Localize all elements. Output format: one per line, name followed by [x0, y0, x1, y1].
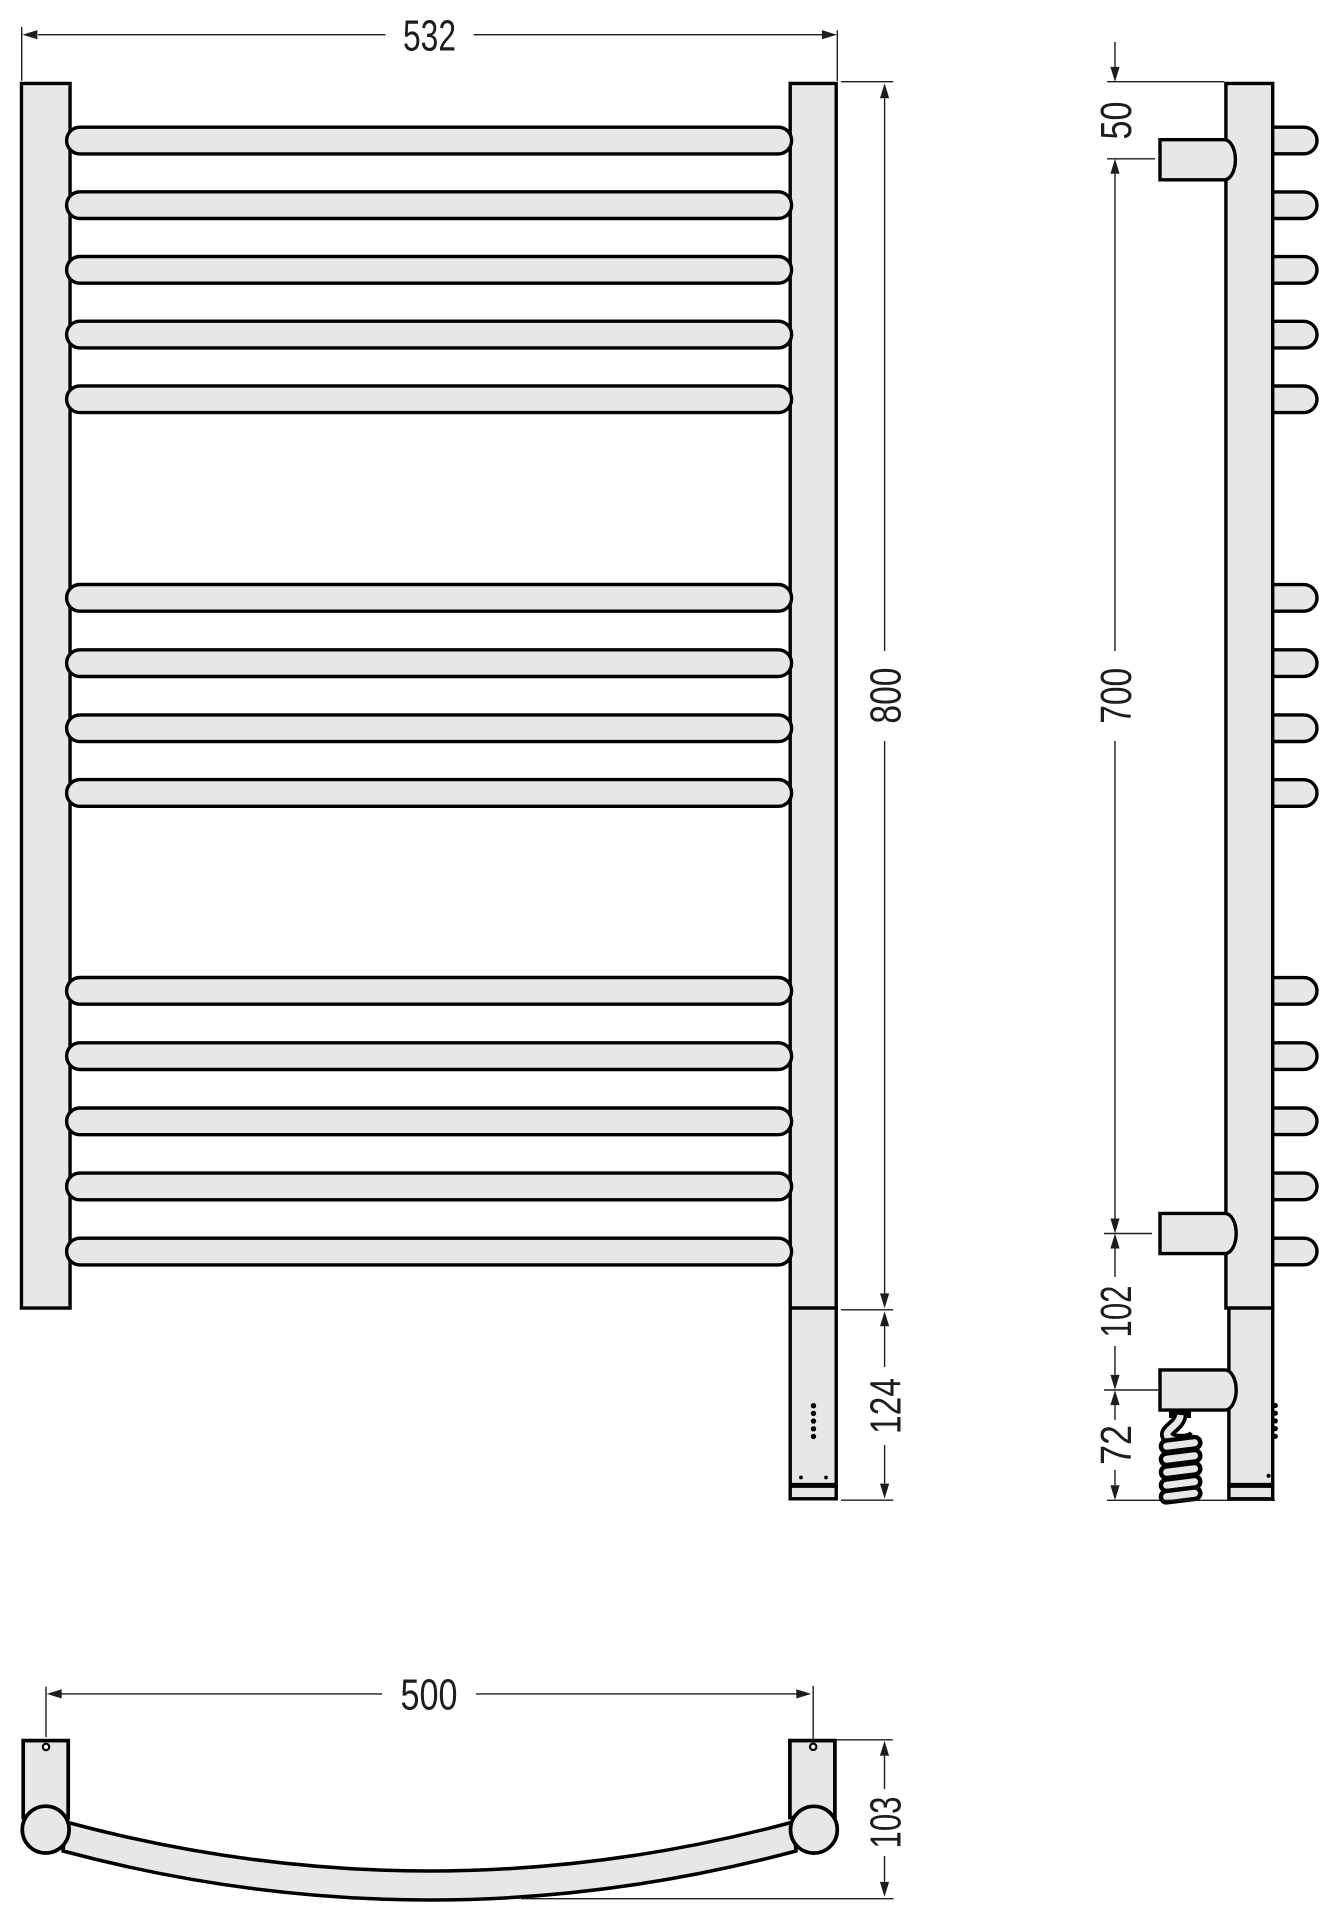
svg-text:103: 103 — [862, 1797, 910, 1849]
svg-text:124: 124 — [862, 1378, 910, 1434]
svg-text:800: 800 — [862, 668, 910, 724]
svg-text:72: 72 — [1093, 1425, 1141, 1465]
svg-text:700: 700 — [1093, 668, 1141, 724]
svg-text:102: 102 — [1093, 1286, 1141, 1338]
svg-text:50: 50 — [1093, 102, 1141, 140]
svg-text:532: 532 — [403, 13, 456, 61]
svg-text:500: 500 — [401, 1672, 458, 1720]
